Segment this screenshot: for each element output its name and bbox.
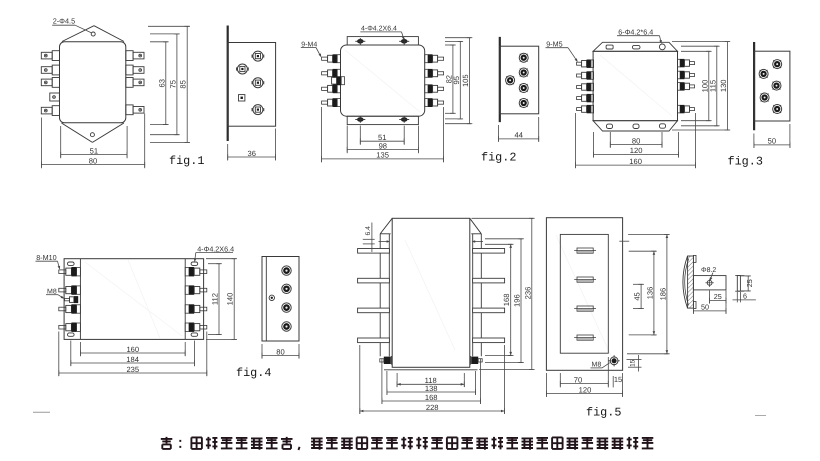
- svg-text:85: 85: [179, 80, 188, 88]
- svg-text:50: 50: [701, 303, 709, 312]
- svg-text:Φ8.2: Φ8.2: [701, 267, 716, 274]
- svg-text:105: 105: [461, 74, 470, 87]
- svg-text:6: 6: [743, 291, 747, 300]
- svg-text:25: 25: [714, 292, 722, 301]
- svg-text:2-Φ4.5: 2-Φ4.5: [53, 17, 75, 26]
- svg-text:196: 196: [513, 294, 522, 307]
- svg-text:75: 75: [168, 80, 177, 88]
- svg-text:160: 160: [629, 157, 642, 166]
- svg-text:140: 140: [226, 293, 235, 306]
- svg-text:8-M10: 8-M10: [36, 253, 56, 262]
- svg-text:fig.2: fig.2: [481, 150, 516, 164]
- svg-text:44: 44: [514, 131, 522, 140]
- svg-text:115: 115: [708, 80, 717, 92]
- svg-text:15: 15: [614, 375, 622, 384]
- svg-text:50: 50: [768, 137, 776, 146]
- svg-text:186: 186: [658, 288, 667, 301]
- svg-text:9-M5: 9-M5: [546, 40, 562, 49]
- svg-text:6.4: 6.4: [365, 226, 372, 236]
- svg-text:160: 160: [126, 345, 139, 354]
- svg-text:63: 63: [157, 79, 166, 87]
- svg-text:36: 36: [247, 149, 255, 158]
- svg-text:80: 80: [276, 347, 284, 356]
- svg-text:130: 130: [719, 79, 728, 92]
- svg-text:51: 51: [90, 146, 98, 155]
- svg-text:184: 184: [126, 355, 139, 364]
- svg-text:98: 98: [379, 141, 387, 150]
- svg-text:80: 80: [632, 136, 640, 145]
- svg-text:fig.4: fig.4: [236, 366, 271, 380]
- svg-text:135: 135: [376, 151, 389, 160]
- svg-text:45: 45: [633, 292, 642, 300]
- svg-text:15: 15: [629, 359, 636, 367]
- svg-text:fig.1: fig.1: [169, 154, 204, 168]
- svg-text:138: 138: [425, 384, 438, 393]
- svg-text:95: 95: [452, 76, 461, 84]
- svg-text:136: 136: [645, 287, 654, 300]
- svg-text:4-Φ4.2X6.4: 4-Φ4.2X6.4: [197, 244, 234, 253]
- svg-text:6-Φ4.2*6.4: 6-Φ4.2*6.4: [618, 27, 653, 36]
- svg-text:120: 120: [579, 385, 592, 394]
- svg-text:168: 168: [502, 294, 511, 307]
- svg-text:235: 235: [126, 365, 139, 374]
- svg-text:228: 228: [426, 403, 439, 412]
- svg-text:120: 120: [630, 146, 643, 155]
- svg-text:168: 168: [425, 393, 438, 402]
- svg-text:70: 70: [574, 375, 582, 384]
- svg-text:236: 236: [523, 287, 532, 300]
- svg-text:80: 80: [89, 156, 97, 165]
- svg-text:25: 25: [745, 279, 754, 287]
- svg-text:112: 112: [211, 293, 220, 305]
- svg-text:fig.3: fig.3: [728, 155, 763, 169]
- svg-text:fig.5: fig.5: [586, 406, 621, 420]
